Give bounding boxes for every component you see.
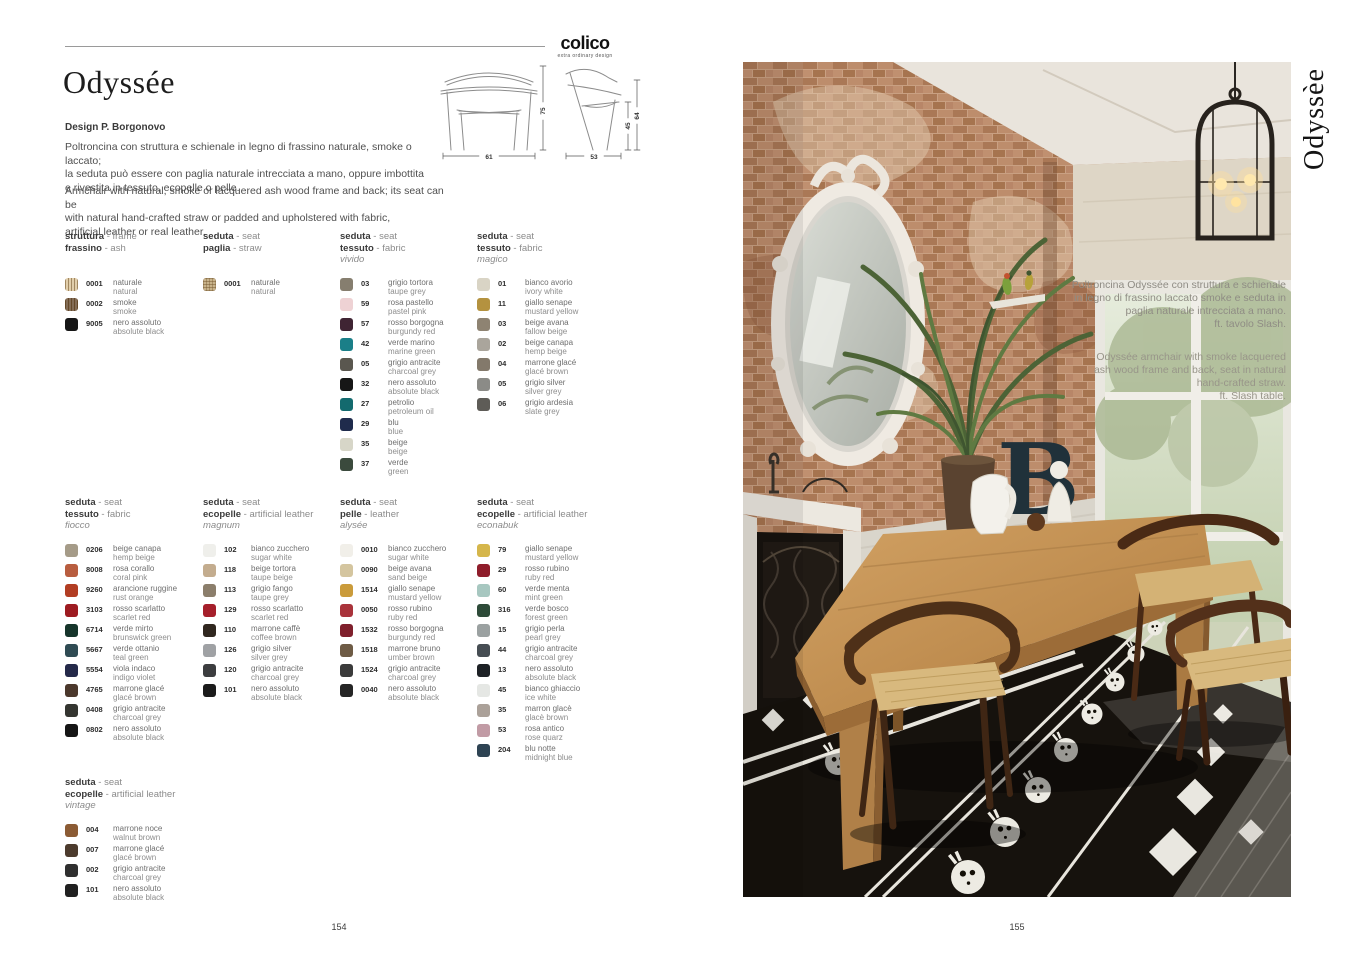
- group-header: seduta - seat tessuto - fabric vivido: [340, 231, 474, 266]
- swatch-names: rosso rubinoruby red: [388, 603, 432, 623]
- swatch-code: 0040: [353, 683, 388, 694]
- color-swatch: [477, 644, 490, 657]
- color-swatch: [203, 664, 216, 677]
- color-swatch: [340, 378, 353, 391]
- group-header: struttura - frame frassino - ash: [65, 231, 199, 254]
- swatch-item: 101 nero assolutoabsolute black: [203, 683, 337, 703]
- swatch-item: 1518 marrone brunoumber brown: [340, 643, 474, 663]
- swatch-group-frame-ash: struttura - frame frassino - ash 0001 na…: [65, 231, 199, 254]
- swatch-names: nero assolutoabsolute black: [388, 683, 439, 703]
- swatch-item: 59 rosa pastellopastel pink: [340, 297, 474, 317]
- swatch-list: 79 giallo senapemustard yellow 29 rosso …: [477, 543, 611, 763]
- swatch-code: 44: [490, 643, 525, 654]
- swatch-names: marrone nocewalnut brown: [113, 823, 162, 843]
- swatch-item: 27 petroliopetroleum oil: [340, 397, 474, 417]
- swatch-item: 101 nero assolutoabsolute black: [65, 883, 199, 903]
- swatch-names: rosso scarlattoscarlet red: [113, 603, 165, 623]
- swatch-code: 29: [490, 563, 525, 574]
- color-swatch: [477, 604, 490, 617]
- swatch-item: 102 bianco zuccherosugar white: [203, 543, 337, 563]
- color-swatch: [203, 278, 216, 291]
- swatch-code: 04: [490, 357, 525, 368]
- swatch-names: grigio antracitecharcoal grey: [113, 703, 165, 723]
- swatch-item: 5554 viola indacoindigo violet: [65, 663, 199, 683]
- swatch-code: 5667: [78, 643, 113, 654]
- swatch-item: 32 nero assolutoabsolute black: [340, 377, 474, 397]
- swatch-item: 01 bianco avorioivory white: [477, 277, 611, 297]
- color-swatch: [65, 724, 78, 737]
- swatch-names: nero assolutoabsolute black: [525, 663, 576, 683]
- swatch-item: 0802 nero assolutoabsolute black: [65, 723, 199, 743]
- svg-text:61: 61: [485, 154, 493, 161]
- wooden-sphere: [1027, 513, 1045, 531]
- swatch-names: grigio antracitecharcoal grey: [251, 663, 303, 683]
- vignette: [743, 62, 803, 897]
- swatch-names: grigio antracitecharcoal grey: [388, 663, 440, 683]
- swatch-code: 0090: [353, 563, 388, 574]
- group-header: seduta - seat ecopelle - artificial leat…: [477, 497, 611, 532]
- swatch-item: 129 rosso scarlattoscarlet red: [203, 603, 337, 623]
- swatch-list: 004 marrone nocewalnut brown 007 marrone…: [65, 823, 199, 903]
- caption-english: Odyssée armchair with smoke lacquered as…: [1030, 351, 1286, 403]
- color-swatch: [340, 458, 353, 471]
- swatch-group-fabric-fiocco: seduta - seat tessuto - fabric fiocco 02…: [65, 497, 199, 532]
- swatch-item: 3103 rosso scarlattoscarlet red: [65, 603, 199, 623]
- swatch-code: 126: [216, 643, 251, 654]
- svg-text:64: 64: [634, 112, 641, 120]
- swatch-names: rosa anticorose quarz: [525, 723, 564, 743]
- swatch-list: 0001 naturalenatural: [203, 277, 337, 297]
- swatch-item: 11 giallo senapemustard yellow: [477, 297, 611, 317]
- swatch-item: 007 marrone glacéglacé brown: [65, 843, 199, 863]
- swatch-code: 0001: [78, 277, 113, 288]
- swatch-code: 0001: [216, 277, 251, 288]
- color-swatch: [65, 864, 78, 877]
- swatch-code: 35: [490, 703, 525, 714]
- swatch-item: 6714 verde mirtobrunswick green: [65, 623, 199, 643]
- swatch-item: 0206 beige canapahemp beige: [65, 543, 199, 563]
- swatch-item: 0408 grigio antracitecharcoal grey: [65, 703, 199, 723]
- swatch-item: 57 rosso borgognaburgundy red: [340, 317, 474, 337]
- swatch-names: rosa corallocoral pink: [113, 563, 154, 583]
- swatch-item: 1514 giallo senapemustard yellow: [340, 583, 474, 603]
- swatch-item: 120 grigio antracitecharcoal grey: [203, 663, 337, 683]
- swatch-code: 27: [353, 397, 388, 408]
- swatch-item: 05 grigio silversilver grey: [477, 377, 611, 397]
- vertical-page-title: Odyssèe: [1299, 68, 1331, 170]
- product-title: Odyssée: [63, 64, 175, 101]
- swatch-names: grigio perlapearl grey: [525, 623, 565, 643]
- swatch-names: nero assolutoabsolute black: [113, 883, 164, 903]
- swatch-item: 0090 beige avanasand beige: [340, 563, 474, 583]
- color-swatch: [477, 398, 490, 411]
- material-it: struttura: [65, 231, 104, 242]
- swatch-code: 002: [78, 863, 113, 874]
- swatch-code: 37: [353, 457, 388, 468]
- group-header: seduta - seat pelle - leather alysée: [340, 497, 474, 532]
- color-swatch: [340, 564, 353, 577]
- swatch-names: marron glacèglacè brown: [525, 703, 572, 723]
- color-swatch: [340, 624, 353, 637]
- color-swatch: [340, 604, 353, 617]
- color-swatch: [65, 704, 78, 717]
- swatch-code: 316: [490, 603, 525, 614]
- svg-text:75: 75: [540, 107, 547, 115]
- svg-text:53: 53: [590, 154, 598, 161]
- swatch-names: blu nottemidnight blue: [525, 743, 573, 763]
- swatch-code: 204: [490, 743, 525, 754]
- swatch-names: viola indacoindigo violet: [113, 663, 155, 683]
- swatch-list: 0001 naturalenatural 0002 smokesmoke 900…: [65, 277, 199, 337]
- color-swatch: [65, 604, 78, 617]
- swatch-item: 42 verde marinomarine green: [340, 337, 474, 357]
- header-rule: [65, 46, 545, 47]
- swatch-item: 4765 marrone glacéglacé brown: [65, 683, 199, 703]
- swatch-names: naturalenatural: [251, 277, 280, 297]
- swatch-names: verdegreen: [388, 457, 408, 477]
- swatch-names: petroliopetroleum oil: [388, 397, 434, 417]
- color-swatch: [340, 584, 353, 597]
- swatch-names: verde boscoforest green: [525, 603, 569, 623]
- swatch-names: bianco ghiaccioice white: [525, 683, 580, 703]
- colico-logo: colico extra ordinary design: [550, 34, 620, 59]
- color-swatch: [477, 378, 490, 391]
- swatch-code: 03: [353, 277, 388, 288]
- group-header: seduta - seat ecopelle - artificial leat…: [65, 777, 199, 812]
- swatch-item: 002 grigio antracitecharcoal grey: [65, 863, 199, 883]
- swatch-code: 0206: [78, 543, 113, 554]
- swatch-item: 35 beigebeige: [340, 437, 474, 457]
- swatch-item: 45 bianco ghiaccioice white: [477, 683, 611, 703]
- swatch-code: 118: [216, 563, 251, 574]
- swatch-names: giallo senapemustard yellow: [388, 583, 441, 603]
- swatch-code: 1514: [353, 583, 388, 594]
- group-header: seduta - seat ecopelle - artificial leat…: [203, 497, 337, 532]
- color-swatch: [477, 584, 490, 597]
- swatch-group-ecoleather-vintage: seduta - seat ecopelle - artificial leat…: [65, 777, 199, 812]
- swatch-names: giallo senapemustard yellow: [525, 297, 578, 317]
- swatch-item: 29 rosso rubinoruby red: [477, 563, 611, 583]
- color-swatch: [203, 564, 216, 577]
- swatch-names: arancione rugginerust orange: [113, 583, 177, 603]
- swatch-names: giallo senapemustard yellow: [525, 543, 578, 563]
- swatch-item: 0050 rosso rubinoruby red: [340, 603, 474, 623]
- swatch-names: rosso borgognaburgundy red: [388, 623, 444, 643]
- swatch-group-seat-straw: seduta - seat paglia - straw 0001 natura…: [203, 231, 337, 254]
- swatch-code: 1532: [353, 623, 388, 634]
- swatch-code: 0050: [353, 603, 388, 614]
- dimension-diagram: 61 75 53 45 64: [437, 58, 643, 168]
- color-swatch: [477, 318, 490, 331]
- swatch-names: rosso scarlattoscarlet red: [251, 603, 303, 623]
- swatch-code: 110: [216, 623, 251, 634]
- color-swatch: [340, 358, 353, 371]
- swatch-names: rosso rubinoruby red: [525, 563, 569, 583]
- swatch-code: 101: [216, 683, 251, 694]
- color-swatch: [65, 624, 78, 637]
- swatch-code: 4765: [78, 683, 113, 694]
- swatch-names: beige avanafallow beige: [525, 317, 569, 337]
- swatch-code: 42: [353, 337, 388, 348]
- swatch-code: 79: [490, 543, 525, 554]
- swatch-code: 35: [353, 437, 388, 448]
- swatch-names: blublue: [388, 417, 403, 437]
- swatch-names: grigio antracitecharcoal grey: [113, 863, 165, 883]
- swatch-code: 60: [490, 583, 525, 594]
- finish-en: - ash: [102, 243, 126, 254]
- color-swatch: [203, 544, 216, 557]
- swatch-item: 03 beige avanafallow beige: [477, 317, 611, 337]
- swatch-code: 53: [490, 723, 525, 734]
- swatch-code: 102: [216, 543, 251, 554]
- swatch-code: 0408: [78, 703, 113, 714]
- group-header: seduta - seat tessuto - fabric fiocco: [65, 497, 199, 532]
- color-swatch: [477, 704, 490, 717]
- swatch-names: beige canapahemp beige: [525, 337, 573, 357]
- swatch-item: 04 marrone glacéglacé brown: [477, 357, 611, 377]
- swatch-names: grigio ardesiaslate grey: [525, 397, 573, 417]
- swatch-code: 004: [78, 823, 113, 834]
- swatch-item: 53 rosa anticorose quarz: [477, 723, 611, 743]
- swatch-names: verde marinomarine green: [388, 337, 435, 357]
- color-swatch: [203, 624, 216, 637]
- swatch-item: 15 grigio perlapearl grey: [477, 623, 611, 643]
- color-swatch: [65, 278, 78, 291]
- swatch-names: grigio silversilver grey: [251, 643, 291, 663]
- swatch-item: 118 beige tortorataupe beige: [203, 563, 337, 583]
- swatch-code: 11: [490, 297, 525, 308]
- color-swatch: [477, 358, 490, 371]
- swatch-item: 0040 nero assolutoabsolute black: [340, 683, 474, 703]
- group-header: seduta - seat paglia - straw: [203, 231, 337, 254]
- swatch-item: 37 verdegreen: [340, 457, 474, 477]
- swatch-names: grigio tortorataupe grey: [388, 277, 433, 297]
- swatch-names: bianco zuccherosugar white: [251, 543, 309, 563]
- swatch-names: nero assolutoabsolute black: [113, 723, 164, 743]
- swatch-names: beige canapahemp beige: [113, 543, 161, 563]
- swatch-code: 9005: [78, 317, 113, 328]
- swatch-names: rosa pastellopastel pink: [388, 297, 433, 317]
- swatch-names: marrone brunoumber brown: [388, 643, 440, 663]
- white-jug: [971, 474, 1010, 534]
- material-en: - frame: [104, 231, 137, 242]
- finish-it: frassino: [65, 243, 102, 254]
- swatch-item: 0001 naturalenatural: [203, 277, 337, 297]
- swatch-code: 129: [216, 603, 251, 614]
- swatch-names: verde mirtobrunswick green: [113, 623, 171, 643]
- svg-text:45: 45: [625, 122, 632, 130]
- color-swatch: [65, 544, 78, 557]
- swatch-code: 13: [490, 663, 525, 674]
- swatch-names: naturalenatural: [113, 277, 142, 297]
- caption-italian: Poltroncina Odyssée con struttura e schi…: [1030, 279, 1286, 331]
- swatch-code: 59: [353, 297, 388, 308]
- swatch-code: 45: [490, 683, 525, 694]
- swatch-item: 60 verde mentamint green: [477, 583, 611, 603]
- color-swatch: [65, 584, 78, 597]
- swatch-names: marrone glacéglacé brown: [113, 843, 164, 863]
- logo-wordmark: colico: [550, 34, 620, 52]
- color-swatch: [203, 684, 216, 697]
- swatch-item: 1532 rosso borgognaburgundy red: [340, 623, 474, 643]
- color-swatch: [477, 744, 490, 757]
- color-swatch: [340, 298, 353, 311]
- swatch-names: verde mentamint green: [525, 583, 569, 603]
- swatch-code: 1518: [353, 643, 388, 654]
- color-swatch: [65, 564, 78, 577]
- swatch-group-leather-alysee: seduta - seat pelle - leather alysée 001…: [340, 497, 474, 532]
- swatch-names: marrone caffècoffee brown: [251, 623, 300, 643]
- chair-side-view: [566, 69, 621, 150]
- swatch-code: 0010: [353, 543, 388, 554]
- swatch-code: 101: [78, 883, 113, 894]
- color-swatch: [477, 684, 490, 697]
- swatch-item: 13 nero assolutoabsolute black: [477, 663, 611, 683]
- swatch-item: 9260 arancione rugginerust orange: [65, 583, 199, 603]
- color-swatch: [65, 684, 78, 697]
- swatch-code: 113: [216, 583, 251, 594]
- swatch-list: 102 bianco zuccherosugar white 118 beige…: [203, 543, 337, 703]
- group-header: seduta - seat tessuto - fabric magico: [477, 231, 611, 266]
- color-swatch: [65, 884, 78, 897]
- chair-front-view: [441, 73, 537, 150]
- color-swatch: [477, 544, 490, 557]
- room-photo-illustration: B: [743, 62, 1291, 897]
- color-swatch: [477, 298, 490, 311]
- color-swatch: [340, 418, 353, 431]
- color-swatch: [477, 564, 490, 577]
- swatch-names: bianco zuccherosugar white: [388, 543, 446, 563]
- color-swatch: [65, 824, 78, 837]
- swatch-item: 35 marron glacèglacè brown: [477, 703, 611, 723]
- swatch-code: 29: [353, 417, 388, 428]
- swatch-code: 05: [353, 357, 388, 368]
- page-number-left: 154: [0, 922, 678, 932]
- color-swatch: [203, 584, 216, 597]
- room-photo: B: [743, 62, 1291, 897]
- swatch-item: 44 grigio antracitecharcoal grey: [477, 643, 611, 663]
- swatch-code: 6714: [78, 623, 113, 634]
- swatch-names: grigio silversilver grey: [525, 377, 565, 397]
- color-swatch: [203, 604, 216, 617]
- swatch-code: 007: [78, 843, 113, 854]
- swatch-code: 57: [353, 317, 388, 328]
- color-swatch: [340, 644, 353, 657]
- swatch-item: 204 blu nottemidnight blue: [477, 743, 611, 763]
- color-swatch: [65, 298, 78, 311]
- color-swatch: [340, 544, 353, 557]
- color-swatch: [477, 664, 490, 677]
- photo-caption: Poltroncina Odyssée con struttura e schi…: [1030, 266, 1286, 416]
- color-swatch: [65, 318, 78, 331]
- swatch-names: beige avanasand beige: [388, 563, 432, 583]
- swatch-code: 1524: [353, 663, 388, 674]
- swatch-names: beigebeige: [388, 437, 408, 457]
- swatch-names: marrone glacéglacé brown: [525, 357, 576, 377]
- swatch-item: 06 grigio ardesiaslate grey: [477, 397, 611, 417]
- swatch-names: nero assolutoabsolute black: [113, 317, 164, 337]
- swatch-list: 03 grigio tortorataupe grey 59 rosa past…: [340, 277, 474, 477]
- swatch-item: 29 blublue: [340, 417, 474, 437]
- swatch-names: grigio antracitecharcoal grey: [388, 357, 440, 377]
- swatch-item: 8008 rosa corallocoral pink: [65, 563, 199, 583]
- color-swatch: [340, 398, 353, 411]
- swatch-names: grigio antracitecharcoal grey: [525, 643, 577, 663]
- page-number-right: 155: [678, 922, 1356, 932]
- color-swatch: [477, 624, 490, 637]
- color-swatch: [340, 664, 353, 677]
- color-swatch: [340, 338, 353, 351]
- color-swatch: [65, 844, 78, 857]
- swatch-item: 02 beige canapahemp beige: [477, 337, 611, 357]
- swatch-item: 0010 bianco zuccherosugar white: [340, 543, 474, 563]
- designer-credit: Design P. Borgonovo: [65, 122, 165, 133]
- swatch-item: 110 marrone caffècoffee brown: [203, 623, 337, 643]
- swatch-item: 79 giallo senapemustard yellow: [477, 543, 611, 563]
- swatch-names: nero assolutoabsolute black: [388, 377, 439, 397]
- swatch-list: 01 bianco avorioivory white 11 giallo se…: [477, 277, 611, 417]
- color-swatch: [65, 644, 78, 657]
- swatch-list: 0010 bianco zuccherosugar white 0090 bei…: [340, 543, 474, 703]
- swatch-item: 0001 naturalenatural: [65, 277, 199, 297]
- swatch-group-ecoleather-magnum: seduta - seat ecopelle - artificial leat…: [203, 497, 337, 532]
- swatch-names: smokesmoke: [113, 297, 137, 317]
- swatch-code: 05: [490, 377, 525, 388]
- swatch-item: 5667 verde ottanioteal green: [65, 643, 199, 663]
- swatch-code: 120: [216, 663, 251, 674]
- swatch-code: 5554: [78, 663, 113, 674]
- swatch-item: 113 grigio fangotaupe grey: [203, 583, 337, 603]
- swatch-names: rosso borgognaburgundy red: [388, 317, 444, 337]
- swatch-item: 1524 grigio antracitecharcoal grey: [340, 663, 474, 683]
- swatch-code: 3103: [78, 603, 113, 614]
- swatch-item: 9005 nero assolutoabsolute black: [65, 317, 199, 337]
- swatch-item: 004 marrone nocewalnut brown: [65, 823, 199, 843]
- color-swatch: [340, 278, 353, 291]
- catalog-spread: colico extra ordinary design Odyssée Des…: [0, 0, 1356, 959]
- swatch-code: 0802: [78, 723, 113, 734]
- swatch-names: bianco avorioivory white: [525, 277, 573, 297]
- swatch-code: 06: [490, 397, 525, 408]
- swatch-item: 126 grigio silversilver grey: [203, 643, 337, 663]
- swatch-code: 9260: [78, 583, 113, 594]
- swatch-list: 0206 beige canapahemp beige 8008 rosa co…: [65, 543, 199, 743]
- swatch-code: 0002: [78, 297, 113, 308]
- color-swatch: [340, 438, 353, 451]
- swatch-code: 03: [490, 317, 525, 328]
- swatch-code: 01: [490, 277, 525, 288]
- swatch-names: nero assolutoabsolute black: [251, 683, 302, 703]
- swatch-item: 05 grigio antracitecharcoal grey: [340, 357, 474, 377]
- swatch-code: 02: [490, 337, 525, 348]
- swatch-code: 32: [353, 377, 388, 388]
- color-swatch: [477, 724, 490, 737]
- color-swatch: [203, 644, 216, 657]
- swatch-names: verde ottanioteal green: [113, 643, 159, 663]
- swatch-group-ecoleather-econabuk: seduta - seat ecopelle - artificial leat…: [477, 497, 611, 532]
- swatch-code: 8008: [78, 563, 113, 574]
- swatch-names: grigio fangotaupe grey: [251, 583, 293, 603]
- swatch-item: 316 verde boscoforest green: [477, 603, 611, 623]
- swatch-names: beige tortorataupe beige: [251, 563, 296, 583]
- swatch-group-fabric-magico: seduta - seat tessuto - fabric magico 01…: [477, 231, 611, 266]
- swatch-code: 15: [490, 623, 525, 634]
- swatch-item: 03 grigio tortorataupe grey: [340, 277, 474, 297]
- color-swatch: [477, 278, 490, 291]
- swatch-names: marrone glacéglacé brown: [113, 683, 164, 703]
- color-swatch: [477, 338, 490, 351]
- swatch-item: 0002 smokesmoke: [65, 297, 199, 317]
